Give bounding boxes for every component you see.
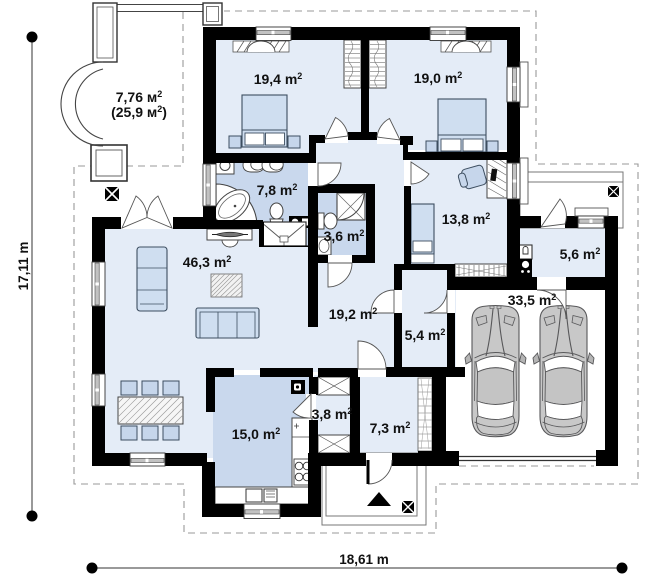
svg-text:46,3 m2: 46,3 m2 [183,254,232,270]
svg-text:7,8 m2: 7,8 m2 [257,182,298,198]
svg-text:3,6 m2: 3,6 m2 [324,228,365,244]
svg-text:5,6 m2: 5,6 m2 [560,246,601,262]
svg-text:19,4 m2: 19,4 m2 [254,71,303,87]
svg-text:17,11 m: 17,11 m [16,242,31,291]
svg-text:19,2 m2: 19,2 m2 [329,306,378,322]
svg-text:7,76 м2: 7,76 м2 [116,89,163,105]
svg-text:3,8 m2: 3,8 m2 [312,406,353,422]
svg-text:15,0 m2: 15,0 m2 [232,426,281,442]
svg-text:5,4 m2: 5,4 m2 [405,327,446,343]
svg-text:7,3 m2: 7,3 m2 [370,420,411,436]
svg-text:18,61 m: 18,61 m [339,552,389,567]
svg-text:13,8 m2: 13,8 m2 [442,211,491,227]
svg-text:33,5 m2: 33,5 m2 [508,292,557,308]
svg-text:19,0 m2: 19,0 m2 [414,70,463,86]
